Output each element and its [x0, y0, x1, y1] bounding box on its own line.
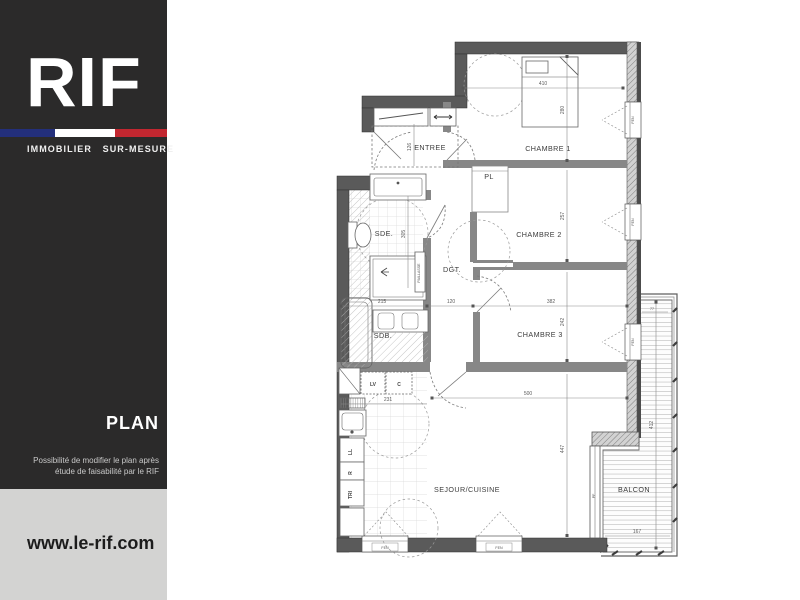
label-tri: TRI [348, 490, 354, 499]
disclaimer-text: Possibilité de modifier le plan après ét… [33, 455, 159, 477]
sde-door-leaf [427, 205, 445, 238]
window-sejour-2: FEN [476, 512, 522, 552]
logo-tagline: IMMOBILIER SUR-MESURE [27, 144, 174, 154]
label-sejour: SEJOUR/CUISINE [434, 485, 500, 494]
window-label: FEN [631, 116, 635, 124]
wall-jog [337, 176, 374, 190]
label-lv: LV [370, 382, 377, 388]
sink-bowl [342, 413, 363, 430]
sdb-basin-2 [402, 313, 418, 329]
sdb-basin-1 [378, 313, 394, 329]
entree-closet-penderie [374, 108, 428, 126]
window-chambre2: FEN [602, 204, 641, 240]
label-c: C [397, 382, 401, 388]
dim-ch2-depth: 257 [560, 212, 566, 221]
tricolor-bar [0, 129, 167, 137]
circle-ch1 [464, 54, 526, 116]
label-sdb: SDB. [374, 331, 392, 340]
dim-balcon-width: 167 [633, 529, 642, 535]
pocket-door-rail-1 [473, 260, 513, 263]
plan-title: PLAN [106, 413, 159, 434]
sde-faucet [397, 182, 400, 185]
pocket-door-rail-2 [473, 267, 513, 270]
ch3-door-leaf [477, 288, 501, 312]
dim-balcon-top: 77 [650, 307, 654, 311]
floor-plan-svg: FEN FEN FEN PF [167, 0, 800, 600]
dim-dgt-width: 120 [447, 299, 456, 305]
window-label: FEN [631, 338, 635, 346]
website-url: www.le-rif.com [27, 533, 154, 554]
window-chambre1: FEN [602, 102, 641, 138]
partition-sejour-right [466, 362, 627, 372]
sidebar-dark-panel: RIF IMMOBILIER SUR-MESURE PLAN Possibili… [0, 0, 167, 489]
rif-logo: RIF [26, 42, 142, 122]
partition-ch3-stub [473, 270, 480, 280]
dim-sdb-width: 215 [378, 299, 387, 305]
pillow [526, 61, 548, 73]
label-chambre1: CHAMBRE 1 [525, 144, 571, 153]
sink-faucet [350, 430, 353, 433]
label-chambre2: CHAMBRE 2 [516, 230, 562, 239]
flag-blue [0, 129, 55, 137]
dim-ch3-depth: 242 [560, 318, 566, 327]
sde-basin [374, 178, 422, 196]
dim-sde-depth: 305 [401, 230, 407, 239]
disclaimer-line1: Possibilité de modifier le plan après [33, 455, 159, 466]
partition-ch1-bottom [443, 160, 627, 168]
wall-left-entry [362, 108, 374, 132]
wall-balcony-step [592, 432, 639, 446]
window-label: FEN [631, 218, 635, 226]
dim-cuisine-width: 231 [384, 397, 393, 403]
balcony-door-label: PF [592, 493, 596, 498]
sejour-door-leaf [438, 372, 466, 396]
flag-white [55, 129, 115, 137]
dim-balcon-length: 412 [649, 421, 655, 430]
wall-top [455, 42, 639, 54]
vent-grille [340, 398, 365, 408]
wall-right-1 [627, 42, 637, 102]
wall-upper-left [362, 96, 467, 108]
dim-entree-depth: 126 [407, 143, 413, 152]
label-balcon: BALCON [618, 485, 650, 494]
floor-plan-area: FEN FEN FEN PF [167, 0, 800, 600]
bathtub [341, 298, 372, 368]
sidebar: RIF IMMOBILIER SUR-MESURE PLAN Possibili… [0, 0, 167, 600]
window-label: FEN [381, 546, 389, 550]
label-paillasse: PAILLASSE [417, 263, 421, 283]
dim-ch3-width: 382 [547, 299, 556, 305]
partition-ch2-left [470, 212, 477, 262]
dim-sejour-depth: 447 [560, 445, 566, 454]
dim-ch1-width: 410 [539, 81, 548, 87]
label-entree: ENTREE [414, 143, 446, 152]
disclaimer-line2: étude de faisabilité par le RIF [33, 466, 159, 477]
label-ll: LL [348, 449, 354, 455]
bed [522, 57, 578, 127]
wall-right-2 [627, 138, 637, 204]
end-cabinet [340, 508, 364, 536]
label-dgt: DGT. [443, 265, 461, 274]
ch1-door-leaf [447, 139, 467, 160]
r-unit [340, 462, 364, 480]
label-chambre3: CHAMBRE 3 [517, 330, 563, 339]
label-pl: PL [484, 172, 494, 181]
wall-top-step [455, 54, 467, 102]
dim-sejour-width: 500 [524, 391, 533, 397]
label-r: R [348, 471, 354, 475]
balcony-door: PF [590, 446, 600, 538]
sejour-door-arc [430, 372, 466, 408]
dim-ch1-depth: 280 [560, 106, 566, 115]
window-chambre3: FEN [602, 324, 641, 360]
partition-ch2-ch3 [513, 262, 627, 270]
window-label: FEN [495, 546, 503, 550]
page: RIF IMMOBILIER SUR-MESURE PLAN Possibili… [0, 0, 800, 600]
label-sde: SDE. [375, 229, 393, 238]
wall-right-3 [627, 240, 637, 324]
entree-zone [372, 108, 458, 167]
partition-ch3-left [473, 312, 480, 362]
flag-red [115, 129, 167, 137]
toilet-bowl [355, 223, 371, 247]
